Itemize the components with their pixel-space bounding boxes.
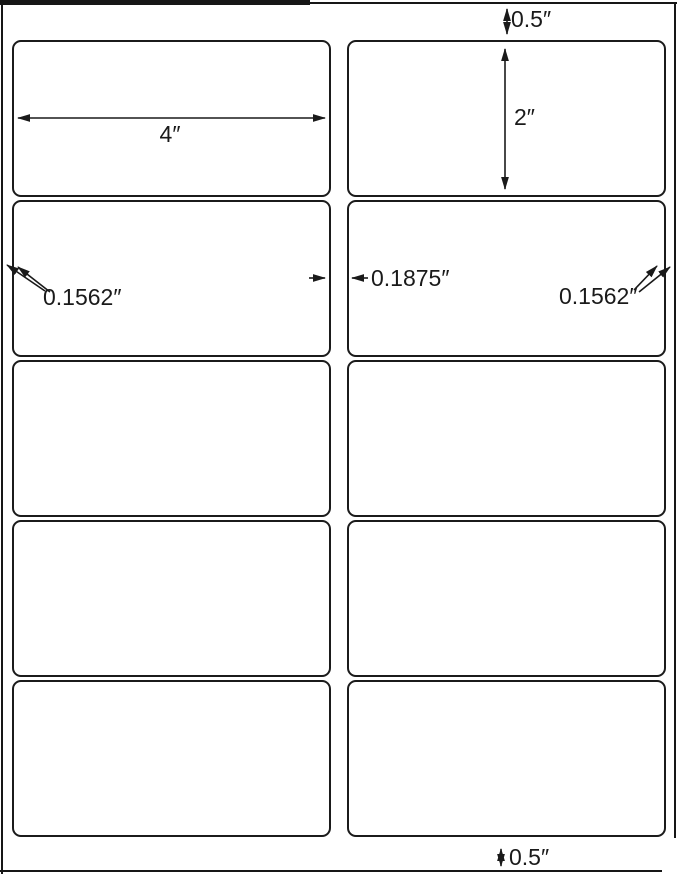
label-sheet-diagram: 0.5″ 4″ 2″ 0.1562″ 0.1875″ 0.1562″ 0.5″ — [0, 0, 679, 879]
label-grid — [12, 40, 666, 837]
label-cell — [12, 40, 331, 197]
label-cell — [347, 360, 666, 517]
label-cell — [347, 40, 666, 197]
column-gap-dimension-label: 0.1875″ — [371, 265, 450, 291]
label-cell — [12, 360, 331, 517]
sheet-border-top-thick-segment — [0, 0, 310, 5]
label-height-dimension-label: 2″ — [514, 104, 535, 130]
left-margin-dimension-label: 0.1562″ — [43, 284, 122, 310]
top-margin-dimension-label: 0.5″ — [511, 6, 551, 32]
sheet-border-right — [674, 2, 676, 838]
label-cell — [12, 680, 331, 837]
sheet-border-bottom — [0, 870, 662, 872]
sheet-border-left — [1, 0, 3, 874]
label-cell — [347, 520, 666, 677]
right-margin-dimension-label: 0.1562″ — [559, 283, 633, 309]
label-cell — [347, 680, 666, 837]
label-cell — [12, 200, 331, 357]
label-cell — [12, 520, 331, 677]
bottom-margin-dimension-label: 0.5″ — [509, 844, 549, 870]
label-width-dimension-label: 4″ — [150, 121, 190, 147]
